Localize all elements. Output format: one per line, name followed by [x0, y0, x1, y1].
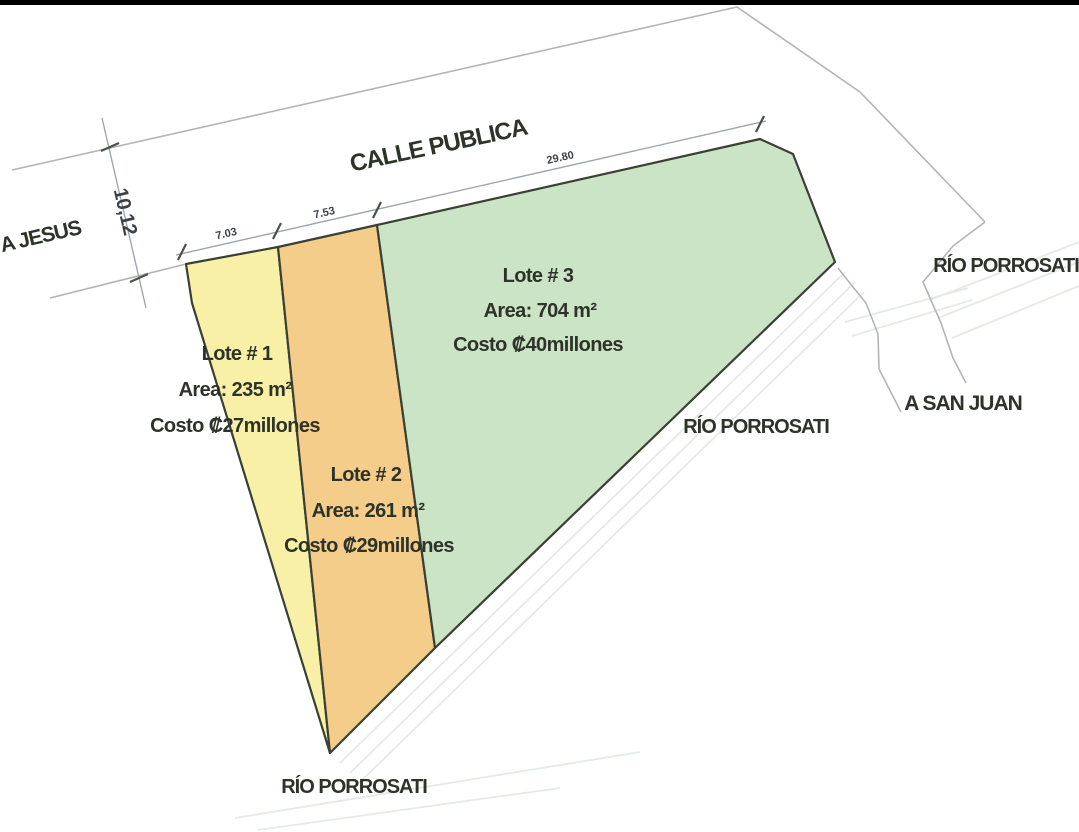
- lot-2-area: Area: 261 m²: [312, 500, 426, 522]
- street-label-calle-publica: CALLE PUBLICA: [347, 114, 530, 178]
- river-hatch-line: [952, 286, 1079, 338]
- river-label-right: RÍO PORROSATI: [933, 254, 1079, 277]
- lot-1-area: Area: 235 m²: [179, 379, 293, 401]
- survey-plan-drawing: 10,12 7.03 7.53 29.80 CALLE PUBLICA A JE…: [0, 0, 1079, 832]
- lot1-frontage-dimension-value: 7.03: [215, 226, 239, 242]
- frontage-extension-line: [50, 264, 186, 298]
- road-label-a-san-juan: A SAN JUAN: [904, 392, 1022, 415]
- survey-plan-canvas: 10,12 7.03 7.53 29.80 CALLE PUBLICA A JE…: [0, 0, 1079, 832]
- lot-3-cost: Costo ₡40millones: [453, 334, 623, 356]
- street-width-dimension-value: 10,12: [109, 186, 141, 238]
- tick-frontage-4: [756, 116, 764, 132]
- lot-3-polygon: [377, 139, 835, 648]
- lot-1-cost: Costo ₡27millones: [150, 415, 320, 437]
- lot-2-name: Lote # 2: [331, 464, 402, 486]
- lot-3-area: Area: 704 m²: [484, 300, 598, 322]
- lot3-frontage-dimension-value: 29.80: [546, 149, 575, 167]
- north-boundary-line: [12, 7, 985, 222]
- lot-1-name: Lote # 1: [202, 343, 273, 365]
- river-hatch-line: [852, 300, 972, 336]
- river-label-bottom: RÍO PORROSATI: [281, 775, 427, 798]
- river-label-middle: RÍO PORROSATI: [683, 415, 829, 438]
- top-border-bar: [0, 0, 1079, 5]
- tick-frontage-1: [178, 244, 186, 260]
- lot-3-name: Lote # 3: [503, 265, 574, 287]
- road-label-a-jesus: A JESUS: [0, 216, 84, 257]
- lot-2-cost: Costo ₡29millones: [284, 535, 454, 557]
